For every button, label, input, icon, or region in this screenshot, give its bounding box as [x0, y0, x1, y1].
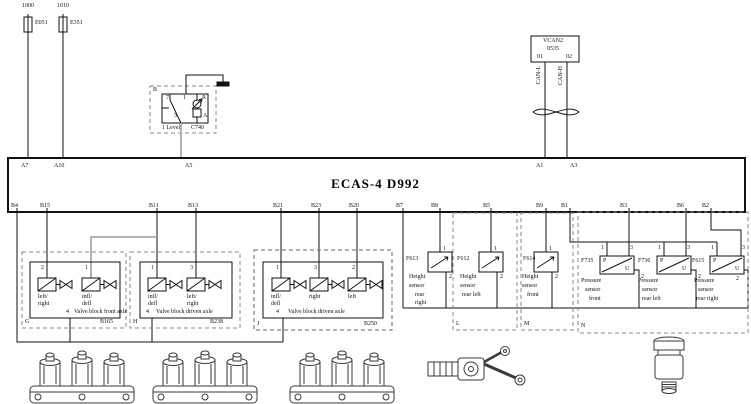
hs-f614-pin1: 1	[549, 246, 552, 253]
switch-actuator-icon	[162, 105, 169, 111]
ps-f615-p: P	[713, 258, 716, 265]
hs-f613-name-4: right	[415, 300, 426, 307]
vb-g-valve1-l1: left/	[38, 294, 48, 301]
ecu-title: ECAS-4 D992	[0, 176, 751, 192]
hs-f614-pin2: 2	[555, 274, 558, 281]
ps-f736-name-3: rear left	[642, 296, 661, 303]
vb-h-pin3: 3	[190, 265, 193, 272]
vb-h-valve1-l1: infl/	[148, 294, 158, 301]
ecu-pin-b5: B5	[483, 203, 490, 210]
valve-manifold-photo-2	[153, 351, 257, 403]
level-switch-name: 1 Level	[162, 125, 180, 132]
ecu-pin-a3: A3	[570, 163, 577, 170]
vb-j-corner: J	[257, 321, 259, 328]
vb-j-pin4: 4	[276, 309, 279, 316]
valve-wiring	[17, 208, 357, 342]
ecu-pin-b4: B4	[11, 203, 18, 210]
vb-g-title: Valve block front axle	[74, 309, 127, 316]
ps-f615-name-1: Pressure	[694, 278, 714, 285]
vb-j-valve3-l1: left	[348, 294, 356, 301]
resistor-icon	[193, 109, 201, 117]
vb-g-pin4: 4	[66, 309, 69, 316]
vb-g-valve1-l2: right	[38, 301, 49, 308]
fuse-label-e051: E051	[35, 20, 48, 27]
vb-g-pin1: 1	[85, 265, 88, 272]
ps-f736-pin3: 3	[687, 245, 690, 252]
level-switch-pin7: 7	[166, 95, 169, 102]
vb-g-valve2-l1: infl/	[82, 294, 92, 301]
ps-f735-p: P	[603, 258, 606, 265]
vb-h-valve2-l2: right	[187, 301, 198, 308]
ps-f735-name-3: front	[589, 296, 601, 303]
vb-j-valve2-l1: right	[309, 294, 320, 301]
level-switch-code: C740	[191, 125, 204, 132]
ps-f736-name-1: Pressure	[638, 278, 658, 285]
hs-f612-code: F612	[457, 256, 469, 263]
hs-f613-pin1: 1	[443, 246, 446, 253]
vb-h-pin4: 4	[146, 309, 149, 316]
ps-f615-pin3: 3	[742, 245, 745, 252]
vb-h-pin1: 1	[151, 265, 154, 272]
schematic-lines	[0, 0, 751, 404]
hs-f614-name-1: Height	[522, 274, 538, 281]
ecu-pin-b9: B9	[536, 203, 543, 210]
hs-f614-name-2: sensor	[522, 283, 537, 290]
ecu-pin-b6: B6	[677, 203, 684, 210]
ecu-pin-b11: B11	[149, 203, 159, 210]
vb-j-valve1-l1: infl/	[271, 294, 281, 301]
valve-block-driven-axle-1	[130, 252, 240, 328]
ecu-pin-b7: B7	[396, 203, 403, 210]
ps-f735-u: U	[625, 266, 629, 273]
hs-f612-name-3: rear left	[462, 292, 481, 299]
hs-f612-corner: L	[456, 321, 460, 328]
vcan2-code: 0535	[547, 46, 559, 53]
hs-f613-name-2: sensor	[409, 283, 424, 290]
vb-j-title: Valve block driven axle	[288, 309, 345, 316]
ps-corner: N	[581, 323, 585, 330]
can-l-wire-label: CAN-L	[536, 66, 543, 84]
ps-f735-name-2: sensor	[585, 287, 600, 294]
hs-f612-pin2: 2	[500, 274, 503, 281]
ps-f735-name-1: Pressure	[581, 278, 601, 285]
valve-seat-icon	[60, 281, 72, 289]
pressure-sensor-photo	[654, 337, 684, 394]
ecu-pin-b3: B3	[620, 203, 627, 210]
vb-h-title: Valve block driven axle	[156, 309, 213, 316]
ecu-pin-b2: B2	[702, 203, 709, 210]
level-switch-corner: B	[153, 87, 157, 94]
vb-j-pin3: 3	[314, 265, 317, 272]
ecu-pin-b23: B23	[311, 203, 321, 210]
vcan2-pin1: 01	[537, 54, 543, 61]
ps-f735-code: F735	[581, 258, 593, 265]
ps-f736-name-2: sensor	[642, 287, 657, 294]
vb-h-valve1-l2: defl	[148, 301, 157, 308]
wire-number-1010: 1010	[57, 3, 69, 10]
vcan2-title: VCAN2	[543, 38, 563, 45]
ps-f615-pin2: 2	[736, 276, 739, 283]
ecu-pin-a10: A10	[54, 163, 64, 170]
ps-f735-pin1: 1	[601, 245, 604, 252]
ecu-pin-b13: B13	[188, 203, 198, 210]
ps-f615-name-2: sensor	[698, 287, 713, 294]
wire-number-1000: 1000	[22, 3, 34, 10]
valve-manifold-photo-3	[290, 351, 394, 403]
level-switch-pin5: 5	[174, 113, 177, 120]
hs-f614-corner: M	[524, 321, 529, 328]
ecu-pin-b8: B8	[431, 203, 438, 210]
height-sensor-photo	[428, 347, 525, 386]
vb-g-corner: G	[25, 319, 29, 326]
vb-h-corner: H	[133, 319, 137, 326]
vb-j-pin2: 2	[352, 265, 355, 272]
ps-f615-code: F615	[692, 258, 704, 265]
level-switch-pin1: 1	[183, 95, 186, 102]
vb-g-pin2: 2	[41, 265, 44, 272]
ecu-pin-b21: B21	[273, 203, 283, 210]
valve-manifold-photo-1	[30, 351, 134, 403]
ps-f736-u: U	[682, 266, 686, 273]
ground-icon	[217, 82, 229, 86]
ecu-pin-a1: A1	[536, 163, 543, 170]
ps-f615-name-3: rear right	[696, 296, 718, 303]
vb-j-valve1-l2: defl	[271, 301, 280, 308]
ecu-pin-a7: A7	[21, 163, 28, 170]
valve-block-front-axle	[22, 252, 126, 328]
wiring-diagram: 1000 1010 E051 E351 B 7 1 R 5 A 1 Level …	[0, 0, 751, 404]
vb-g-valve2-l2: defl	[82, 301, 91, 308]
vb-h-code: B238	[210, 319, 223, 326]
infl-defl-gray-branch	[91, 237, 157, 278]
hs-f613-pin2: 2	[449, 274, 452, 281]
vb-h-valve2-l1: left/	[187, 294, 197, 301]
level-switch-pinR: R	[202, 95, 206, 102]
ecu-pin-b20: B20	[349, 203, 359, 210]
ps-f615-u: U	[735, 266, 739, 273]
hs-f613-name-1: Height	[409, 274, 425, 281]
vb-g-code: B165	[100, 319, 113, 326]
hs-f612-name-2: sensor	[460, 283, 475, 290]
hs-f613-code: F613	[406, 256, 418, 263]
ps-f736-pin1: 1	[658, 245, 661, 252]
ps-f615-pin1: 1	[711, 245, 714, 252]
valve-block-driven-axle-2	[254, 250, 392, 330]
ps-f736-p: P	[660, 258, 663, 265]
hs-f614-name-3: front	[527, 292, 539, 299]
height-sensors	[428, 213, 573, 330]
ps-f736-code: F736	[638, 258, 650, 265]
sensor-arrow-icon	[431, 257, 448, 268]
can-h-wire-label: CAN-H	[558, 66, 565, 85]
vb-j-pin1: 1	[276, 265, 279, 272]
ps-f735-pin3: 3	[630, 245, 633, 252]
vcan2-pin2: 02	[566, 54, 572, 61]
vb-j-code: B250	[364, 321, 377, 328]
ecu-pin-a5: A5	[185, 163, 192, 170]
hs-f612-pin1: 1	[494, 246, 497, 253]
power-feed-wires	[28, 14, 63, 162]
ecu-pin-b1: B1	[561, 203, 568, 210]
hs-f613-name-3: rear	[415, 292, 424, 299]
fuse-label-e351: E351	[70, 20, 83, 27]
hs-f614-code: F614	[523, 256, 535, 263]
ecu-pin-b15: B15	[40, 203, 50, 210]
level-switch-pinA: A	[203, 113, 207, 120]
hs-f612-name-1: Height	[460, 274, 476, 281]
